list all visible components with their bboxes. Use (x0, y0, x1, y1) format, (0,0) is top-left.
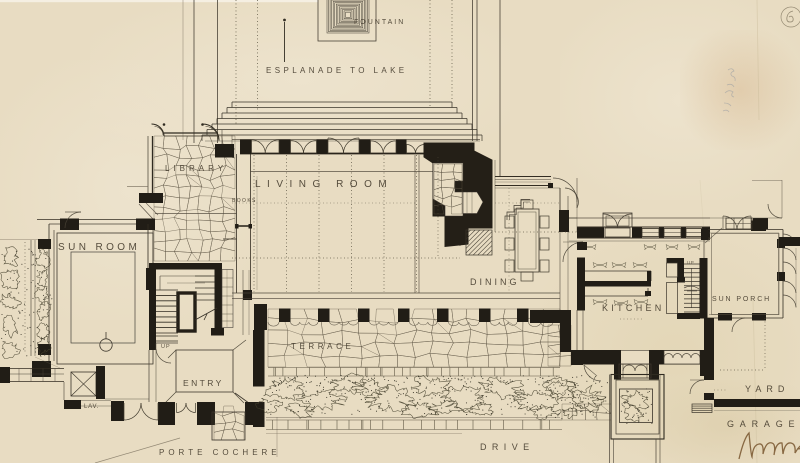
svg-text:LAV.: LAV. (84, 404, 99, 410)
svg-text:ESPLANADE TO LAKE: ESPLANADE TO LAKE (266, 66, 408, 75)
svg-text:UP: UP (161, 344, 171, 350)
svg-text:PORTE COCHERE: PORTE COCHERE (159, 448, 281, 457)
svg-text:DINING: DINING (470, 277, 520, 287)
svg-text:UP: UP (687, 260, 694, 265)
svg-text:LIVING ROOM: LIVING ROOM (255, 179, 393, 190)
svg-text:LIBRARY: LIBRARY (165, 164, 227, 173)
svg-text:BOOKS: BOOKS (232, 198, 257, 204)
svg-text:DRIVE: DRIVE (480, 442, 535, 452)
svg-text:YARD: YARD (745, 384, 789, 394)
svg-text:ENTRY: ENTRY (183, 378, 224, 388)
svg-text:SUN ROOM: SUN ROOM (58, 242, 140, 253)
svg-text:SUN PORCH: SUN PORCH (712, 296, 771, 303)
svg-text:KITCHEN: KITCHEN (602, 303, 665, 313)
svg-text:FOUNTAIN: FOUNTAIN (354, 19, 405, 26)
svg-text:GARAGE: GARAGE (727, 419, 800, 429)
svg-text:TERRACE: TERRACE (291, 342, 354, 351)
